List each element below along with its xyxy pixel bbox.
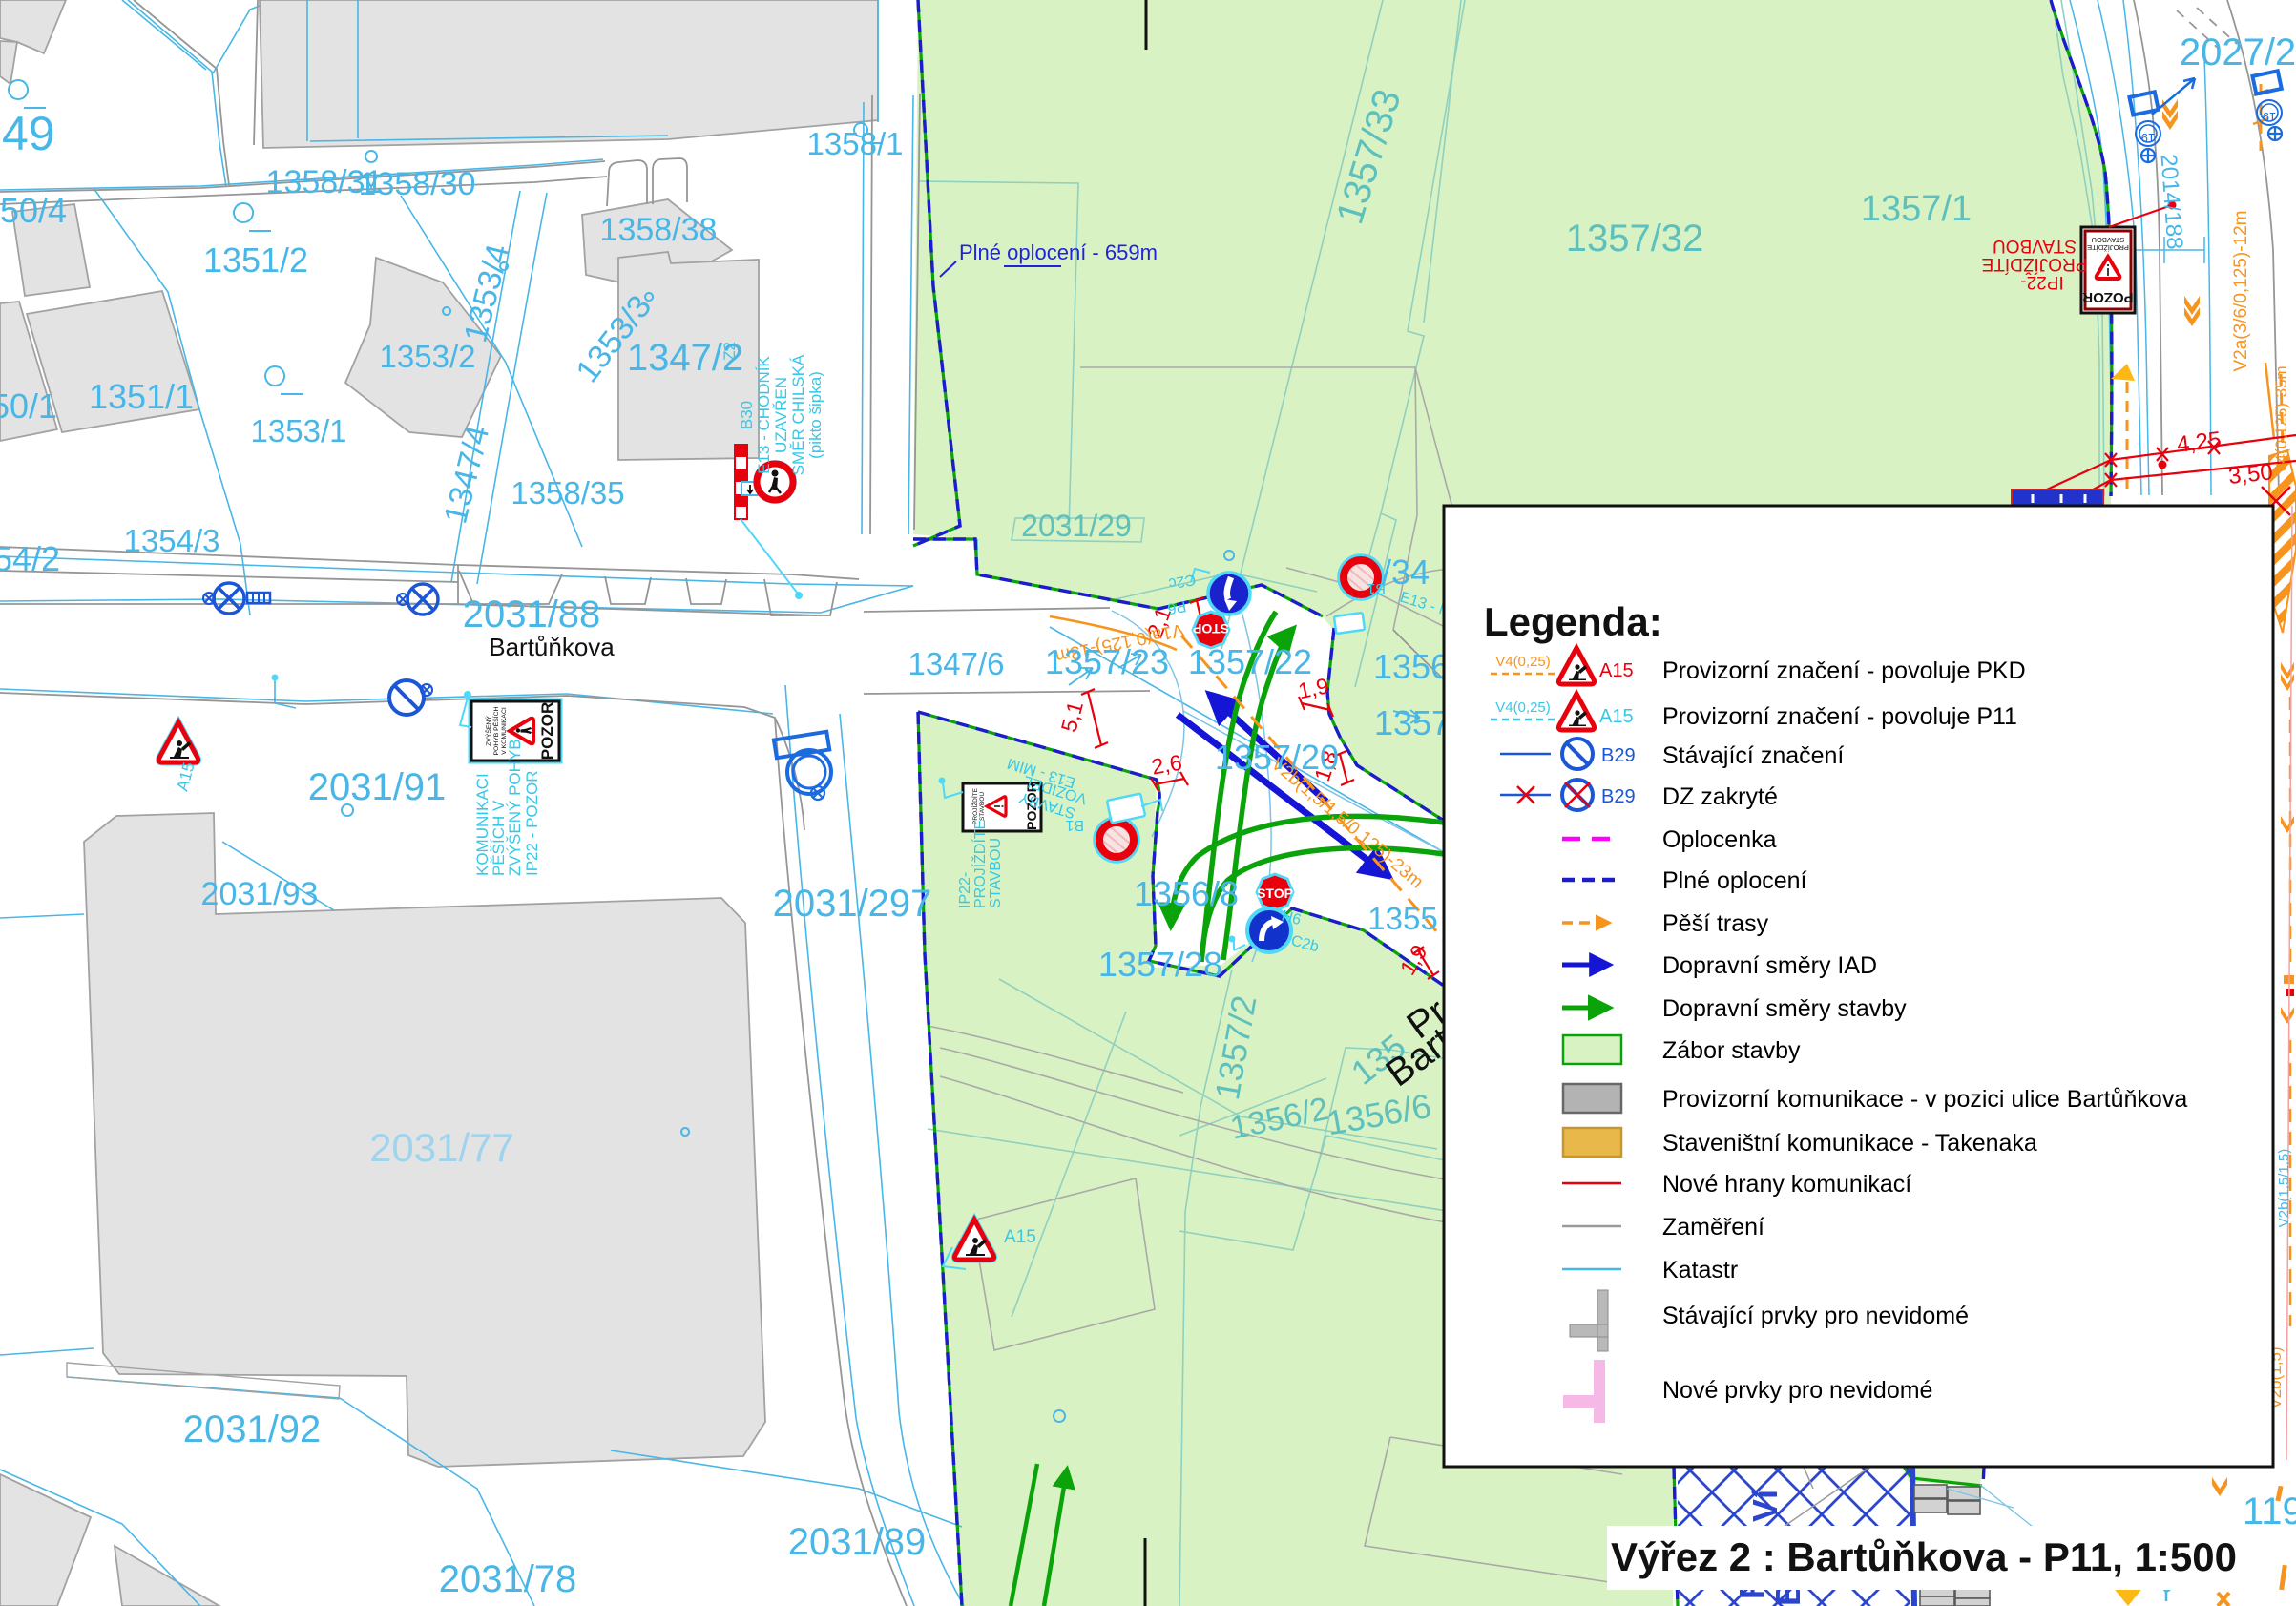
svg-text:1357: 1357 [1374, 703, 1451, 742]
svg-text:STAVBOU: STAVBOU [979, 792, 986, 821]
svg-text:2031/93: 2031/93 [201, 876, 319, 912]
svg-text:Plné oplocení: Plné oplocení [1662, 867, 1807, 894]
svg-text:Nové hrany komunikací: Nové hrany komunikací [1662, 1171, 1911, 1198]
svg-text:Stávající prvky pro nevidomé: Stávající prvky pro nevidomé [1662, 1303, 1969, 1329]
svg-text:2031/89: 2031/89 [788, 1521, 927, 1563]
svg-text:19: 19 [2263, 110, 2276, 124]
svg-text:1357/22: 1357/22 [1188, 642, 1312, 681]
svg-text:1347/2: 1347/2 [627, 337, 743, 379]
svg-text:B30: B30 [738, 401, 756, 429]
svg-text:2031/77: 2031/77 [369, 1125, 514, 1170]
svg-text:1357/23: 1357/23 [1045, 642, 1169, 681]
svg-text:2031/92: 2031/92 [183, 1408, 322, 1450]
svg-text:P6: P6 [1166, 597, 1187, 616]
svg-text:Zaměření: Zaměření [1662, 1214, 1764, 1241]
svg-text:1358/38: 1358/38 [600, 212, 718, 248]
svg-text:Dopravní směry IAD: Dopravní směry IAD [1662, 952, 1877, 979]
svg-text:V4(0,25): V4(0,25) [1495, 654, 1551, 670]
svg-text:Výřez 2 : Bartůňkova - P11, 1:: Výřez 2 : Bartůňkova - P11, 1:500 [1611, 1534, 2237, 1579]
svg-text:Provizorní značení - povoluje: Provizorní značení - povoluje P11 [1662, 703, 2017, 730]
svg-text:ZVÝŠENÝ: ZVÝŠENÝ [484, 716, 492, 746]
svg-text:1355: 1355 [1367, 901, 1437, 936]
svg-text:1357/1: 1357/1 [1861, 189, 1972, 229]
svg-text:Oplocenka: Oplocenka [1662, 826, 1777, 853]
svg-text:STOP: STOP [1257, 886, 1293, 901]
svg-text:KOMUNIKACI: KOMUNIKACI [473, 773, 491, 876]
svg-text:1347/6: 1347/6 [908, 646, 1005, 681]
svg-text:A15: A15 [1599, 706, 1634, 727]
svg-text:POZOR: POZOR [538, 702, 556, 760]
svg-text:Zábor stavby: Zábor stavby [1662, 1037, 1801, 1064]
svg-text:IP22 - POZOR: IP22 - POZOR [523, 770, 541, 876]
svg-text:V2a(3/6/0,125)-12m: V2a(3/6/0,125)-12m [2231, 211, 2251, 372]
svg-text:STAVBOU: STAVBOU [1993, 236, 2077, 256]
svg-text:PROJÍŽDÍTE: PROJÍŽDÍTE [971, 820, 989, 908]
svg-text:A15: A15 [1004, 1227, 1036, 1247]
svg-text:DZ zakryté: DZ zakryté [1662, 783, 1778, 810]
svg-text:POHYB PĚŠÍCH: POHYB PĚŠÍCH [491, 706, 500, 755]
svg-text:2027/2: 2027/2 [2180, 31, 2296, 73]
svg-text:2031/88: 2031/88 [463, 594, 601, 636]
svg-text:49: 49 [2, 107, 55, 160]
svg-text:2031/29: 2031/29 [1021, 509, 1132, 543]
svg-text:POZOR: POZOR [2082, 289, 2134, 305]
svg-text:1353/2: 1353/2 [380, 339, 476, 374]
svg-text:1353/1: 1353/1 [251, 413, 347, 448]
svg-text:Staveništní komunikace - Taken: Staveništní komunikace - Takenaka [1662, 1130, 2037, 1157]
svg-text:Nové prvky pro nevidomé: Nové prvky pro nevidomé [1662, 1377, 1932, 1404]
svg-text:1357/28: 1357/28 [1098, 945, 1222, 984]
svg-text:SMĚR CHILSKÁ: SMĚR CHILSKÁ [789, 354, 807, 475]
svg-text:STOP: STOP [1193, 621, 1229, 636]
svg-text:1357/32: 1357/32 [1566, 218, 1704, 260]
svg-text:PĚŠÍCH V: PĚŠÍCH V [490, 800, 508, 876]
svg-text:PROJÍŽDÍTE: PROJÍŽDÍTE [971, 787, 979, 824]
svg-text:A15: A15 [1599, 660, 1634, 681]
svg-text:IP22-: IP22- [2020, 272, 2063, 292]
svg-text:1351/1: 1351/1 [89, 377, 194, 416]
svg-text:Dopravní směry stavby: Dopravní směry stavby [1662, 995, 1907, 1022]
svg-text:Plné oplocení - 659m: Plné oplocení - 659m [959, 240, 1158, 264]
svg-text:IP22-: IP22- [957, 872, 973, 908]
svg-text:STAVBOU: STAVBOU [2092, 236, 2125, 244]
svg-text:2031/297: 2031/297 [773, 883, 932, 925]
svg-text:1351/2: 1351/2 [203, 240, 308, 280]
svg-text:B29: B29 [1601, 745, 1636, 766]
svg-text:2031/78: 2031/78 [439, 1558, 577, 1600]
svg-text:Provizorní komunikace - v pozi: Provizorní komunikace - v pozici ulice B… [1662, 1086, 2187, 1113]
svg-text:2,6: 2,6 [1150, 750, 1184, 780]
svg-text:3,50: 3,50 [2227, 459, 2274, 490]
svg-text:Bartůňkova: Bartůňkova [489, 633, 615, 661]
svg-text:Stávající značení: Stávající značení [1662, 742, 1844, 769]
svg-text:54/2: 54/2 [0, 539, 60, 578]
svg-text:2031/91: 2031/91 [308, 766, 447, 808]
svg-text:Katastr: Katastr [1662, 1257, 1738, 1283]
svg-text:E13 - CHODNÍK: E13 - CHODNÍK [755, 355, 773, 473]
svg-text:50/4: 50/4 [0, 191, 67, 230]
svg-text:V4(0,25): V4(0,25) [1495, 699, 1551, 716]
svg-text:1354/3: 1354/3 [124, 523, 220, 558]
svg-text:Provizorní značení - povoluje: Provizorní značení - povoluje PKD [1662, 657, 2026, 684]
svg-text:V4(0,125)-35m: V4(0,125)-35m [2272, 365, 2290, 473]
svg-text:Pěší trasy: Pěší trasy [1662, 910, 1769, 937]
svg-text:1356/8: 1356/8 [1134, 874, 1239, 913]
svg-text:V2b(1,5/1,5): V2b(1,5/1,5) [2276, 1149, 2292, 1228]
svg-text:/34: /34 [1382, 553, 1430, 592]
svg-text:119: 119 [2243, 1491, 2296, 1533]
svg-text:Ví: Ví [1745, 1489, 1785, 1522]
svg-text:Legenda:: Legenda: [1484, 599, 1662, 644]
svg-text:B29: B29 [1601, 786, 1636, 807]
svg-text:1357/20: 1357/20 [1215, 738, 1339, 777]
svg-text:50/1: 50/1 [0, 386, 57, 426]
svg-text:1358/30: 1358/30 [359, 166, 476, 202]
svg-text:STAVBOU: STAVBOU [988, 838, 1004, 908]
svg-text:UZAVŘEN: UZAVŘEN [772, 377, 790, 453]
svg-text:1358/35: 1358/35 [511, 475, 624, 511]
svg-text:PROJÍŽDÍTE: PROJÍŽDÍTE [1982, 254, 2088, 275]
svg-text:1356: 1356 [1373, 647, 1450, 686]
svg-text:(pikto šipka): (pikto šipka) [806, 371, 824, 459]
svg-text:4,25: 4,25 [2175, 427, 2223, 457]
svg-text:ZVÝŠENÝ POHYB: ZVÝŠENÝ POHYB [506, 739, 524, 876]
svg-text:19: 19 [2141, 131, 2155, 145]
